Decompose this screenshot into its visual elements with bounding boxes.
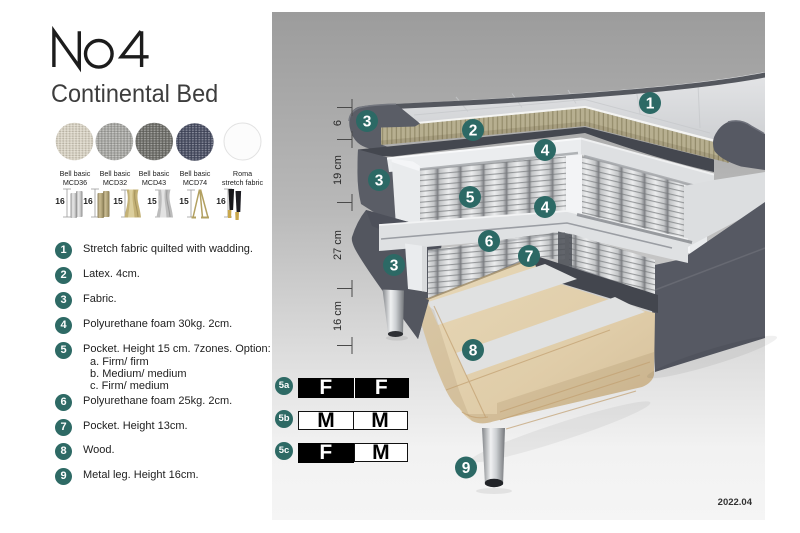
svg-text:16: 16	[83, 196, 93, 206]
svg-text:1: 1	[646, 96, 655, 113]
svg-text:6: 6	[332, 120, 344, 126]
svg-text:15: 15	[147, 196, 157, 206]
svg-text:16: 16	[55, 196, 65, 206]
svg-text:4: 4	[541, 143, 550, 160]
svg-text:9: 9	[462, 460, 471, 477]
svg-text:16 cm: 16 cm	[332, 301, 344, 331]
svg-text:8: 8	[469, 343, 478, 360]
svg-text:4: 4	[541, 200, 550, 217]
svg-text:15: 15	[113, 196, 123, 206]
svg-text:19 cm: 19 cm	[332, 155, 344, 185]
svg-text:15: 15	[179, 196, 189, 206]
svg-text:5: 5	[466, 190, 475, 207]
svg-text:16: 16	[216, 196, 226, 206]
svg-text:6: 6	[485, 234, 494, 251]
svg-text:3: 3	[375, 173, 384, 190]
svg-text:3: 3	[390, 258, 399, 275]
svg-text:7: 7	[525, 249, 534, 266]
svg-text:27 cm: 27 cm	[332, 230, 344, 260]
svg-text:2: 2	[469, 123, 478, 140]
